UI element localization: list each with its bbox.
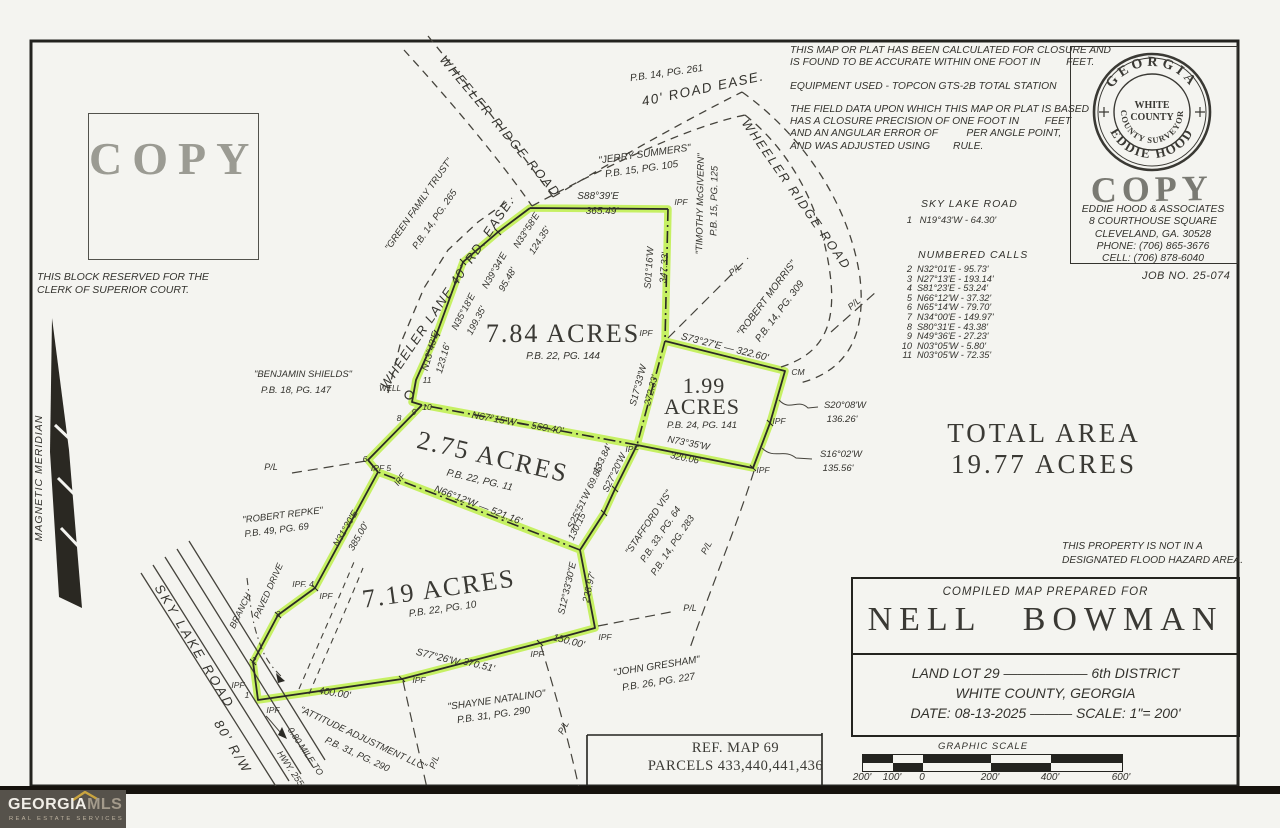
- surveyor-address-line: PHONE: (706) 865-3676: [1072, 241, 1234, 253]
- call-bearing: N65°14'W - 79.70': [917, 302, 991, 312]
- surveyor-address-line: 8 COURTHOUSE SQUARE: [1072, 216, 1234, 228]
- bearing-label: S01°16'W: [643, 245, 657, 289]
- surveyor-address-line: EDDIE HOOD & ASSOCIATES: [1072, 204, 1234, 216]
- vertex-number: 11: [423, 375, 432, 385]
- disclaimer-line: THIS MAP OR PLAT HAS BEEN CALCULATED FOR…: [790, 45, 1111, 57]
- distance-label: 347.33': [658, 251, 671, 284]
- marker-ipf: IPF: [231, 680, 245, 690]
- graphic-scale-title: GRAPHIC SCALE: [918, 741, 1048, 752]
- vertex-number: 9: [412, 407, 417, 417]
- neighbor-label: "ROBERT REPKE": [242, 505, 324, 526]
- north-arrow: [50, 318, 82, 608]
- flood-note-line: THIS PROPERTY IS NOT IN A: [1062, 540, 1243, 554]
- scanned-plat-sheet: { "page": { "copy_stamp": "COPY", "clerk…: [0, 0, 1280, 828]
- logo-brand-1: GEORGIA: [8, 796, 87, 813]
- pl-label: P/L: [699, 539, 714, 556]
- neighbor-label: "TIMOTHY McGIVERN": [694, 153, 707, 255]
- bearing-label: S12°33'30"E: [556, 561, 579, 616]
- surveyor-address: EDDIE HOOD & ASSOCIATES8 COURTHOUSE SQUA…: [1072, 204, 1234, 265]
- disclaimer-line: AND AN ANGULAR ERROR OF PER ANGLE POINT,: [790, 128, 1111, 140]
- scale-tick-label: 600': [1112, 772, 1131, 783]
- bearing-label: S88°39'E: [577, 191, 619, 202]
- vertex-number: 6: [363, 454, 368, 464]
- copy-stamp-box: COPY: [88, 113, 259, 260]
- call-bearing: N49°36'E - 27.23': [917, 331, 989, 341]
- parcel-area-label: ACRES: [664, 394, 740, 419]
- call-number: 11: [898, 351, 912, 361]
- surveyor-address-line: CLEVELAND, GA. 30528: [1072, 229, 1234, 241]
- scale-tick-label: 200': [981, 772, 1000, 783]
- call-bearing: N27°13'E - 193.14': [917, 274, 994, 284]
- closure-disclaimer: THIS MAP OR PLAT HAS BEEN CALCULATED FOR…: [790, 45, 1111, 153]
- total-area: TOTAL AREA 19.77 ACRES: [938, 418, 1150, 480]
- vertex-number: 10: [422, 402, 432, 412]
- marker-ipf: IPF: [319, 591, 333, 601]
- disclaimer-line: AND WAS ADJUSTED USING RULE.: [790, 141, 1111, 153]
- land-lot-line: LAND LOT 29 —————— 6th DISTRICT: [853, 665, 1238, 681]
- flood-note-line: DESIGNATED FLOOD HAZARD AREA.: [1062, 554, 1243, 568]
- date-scale-line: DATE: 08-13-2025 ——— SCALE: 1"= 200': [853, 705, 1238, 721]
- call-bearing: N19°43'W - 64.30': [920, 215, 997, 226]
- scale-tick-label: 200': [853, 772, 872, 783]
- vertex-number: 1: [245, 690, 250, 700]
- call-bearing: N03°05'W - 72.35': [917, 350, 991, 360]
- numbered-call-row: 1 N19°43'W - 64.30': [898, 215, 996, 226]
- total-area-line: TOTAL AREA: [938, 418, 1150, 449]
- road-label-sky-lake-road: SKY LAKE ROAD: [152, 582, 238, 712]
- total-area-line: 19.77 ACRES: [938, 449, 1150, 480]
- parcel-area-label: 7.84 ACRES: [486, 319, 640, 348]
- plat-ref-label: P.B. 22, PG. 144: [526, 351, 600, 362]
- bearing-label: N67°15'W — 569.40': [471, 410, 565, 437]
- call-bearing: N03°05'W - 5.80': [917, 341, 986, 351]
- pl-label: P/L: [556, 719, 571, 736]
- plat-ref-label: P.B. 14, PG. 261: [629, 63, 704, 84]
- scale-bar-segment: [893, 755, 923, 763]
- call-bearing: S81°23'E - 53.24': [917, 283, 988, 293]
- job-number: JOB NO. 25-074: [1142, 270, 1230, 282]
- disclaimer-line: IS FOUND TO BE ACCURATE WITHIN ONE FOOT …: [790, 57, 1111, 69]
- call-bearing: S80°31'E - 43.38': [917, 322, 988, 332]
- logo-tagline: REAL ESTATE SERVICES: [9, 816, 124, 822]
- distance-label: 320.06': [669, 450, 703, 467]
- copy-stamp-text: COPY: [89, 132, 258, 185]
- scale-bar-segment: [991, 763, 1051, 771]
- surveyor-address-line: CELL: (706) 878-6040: [1072, 253, 1234, 265]
- pl-label: P/L: [683, 603, 697, 613]
- scale-tick-label: 400': [1041, 772, 1060, 783]
- branch-arrowhead: [276, 673, 285, 683]
- marker-ipf: IPF: [625, 444, 639, 454]
- clerk-note-line: CLERK OF SUPERIOR COURT.: [37, 284, 209, 297]
- marker-ipf: IPF: [756, 465, 770, 475]
- scale-bar-segment: [923, 763, 991, 771]
- distance-label: 365.49': [586, 206, 620, 217]
- title-block-divider: [853, 653, 1238, 655]
- marker-ipf: IPF: [772, 416, 786, 426]
- scale-bar-segment: [923, 755, 991, 763]
- disclaimer-line: THE FIELD DATA UPON WHICH THIS MAP OR PL…: [790, 104, 1111, 116]
- plat-ref-label: P.B. 24, PG. 141: [667, 420, 737, 431]
- pl-label: P/L: [727, 262, 744, 278]
- vertex-number: 3: [276, 609, 281, 619]
- marker-ipf: IPF: [530, 649, 544, 659]
- ref-parcels-line: PARCELS 433,440,441,436: [643, 757, 828, 775]
- marker-cm: CM: [791, 367, 805, 377]
- scale-bar-segment: [1051, 763, 1122, 771]
- logo-brand-2: MLS: [87, 796, 122, 813]
- calls-road-title: SKY LAKE ROAD: [921, 198, 1018, 210]
- note-mile-to-hwy-2: HWY. 255: [275, 749, 306, 789]
- road-label-wheeler-ridge-road-west: WHEELER RIDGE ROAD: [437, 53, 564, 200]
- scale-tick-label: 100': [883, 772, 902, 783]
- county-line: WHITE COUNTY, GEORGIA: [853, 685, 1238, 701]
- bearing-label: S16°02'W: [820, 449, 863, 460]
- scale-bar-segment: [893, 763, 923, 771]
- clerk-note-line: THIS BLOCK RESERVED FOR THE: [37, 271, 209, 284]
- call-bearing: N34°00'E - 149.97': [917, 312, 994, 322]
- call-bearing: N32°01'E - 95.73': [917, 264, 989, 274]
- clerk-note: THIS BLOCK RESERVED FOR THE CLERK OF SUP…: [37, 271, 209, 297]
- marker-well: WELL: [379, 384, 401, 393]
- mile-marker-arrowhead: [278, 727, 287, 739]
- neighbor-label: "BENJAMIN SHIELDS": [254, 369, 353, 380]
- vertex-number: 2: [251, 655, 257, 665]
- bottom-band: [0, 786, 1280, 794]
- georgia-mls-logo: GEORGIAMLS REAL ESTATE SERVICES: [0, 790, 126, 828]
- pl-label: P/L: [846, 296, 863, 312]
- call-number: 1: [898, 215, 912, 226]
- reference-block: REF. MAP 69 PARCELS 433,440,441,436: [643, 739, 828, 775]
- marker-ipf: IPF. 4: [292, 579, 314, 589]
- marker-ipf: IPF: [412, 675, 426, 685]
- graphic-scale-bar: [862, 754, 1123, 772]
- disclaimer-line: HAS A CLOSURE PRECISION OF ONE FOOT IN F…: [790, 116, 1111, 128]
- call-bearing: N66°12'W - 37.32': [917, 293, 991, 303]
- disclaimer-line: EQUIPMENT USED - TOPCON GTS-2B TOTAL STA…: [790, 81, 1111, 93]
- owner-name: NELL BOWMAN: [853, 601, 1238, 639]
- distance-label: 136.26': [827, 414, 859, 425]
- plat-ref-label: P.B. 15, PG. 125: [708, 165, 720, 236]
- distance-label: 135.56': [823, 463, 855, 474]
- bearing-label: S20°08'W: [824, 400, 867, 411]
- scale-bar-segment: [863, 755, 893, 763]
- road-label-80-rw: 80' R/W: [211, 717, 255, 776]
- scale-bar-segment: [991, 755, 1051, 763]
- parcel-boundary-dashdot: [378, 209, 668, 550]
- marker-ipf: IPF: [639, 328, 653, 338]
- ref-map-line: REF. MAP 69: [643, 739, 828, 757]
- numbered-call-row: 11N03°05'W - 72.35': [898, 351, 994, 361]
- scale-bar-segment: [863, 763, 893, 771]
- marker-ipf: IPF: [674, 197, 688, 207]
- marker-ipf: IPF: [266, 705, 280, 715]
- title-block: COMPILED MAP PREPARED FOR NELL BOWMAN LA…: [851, 577, 1240, 737]
- numbered-calls-table: 2N32°01'E - 95.73'3N27°13'E - 193.14'4S8…: [898, 265, 994, 361]
- graphic-scale-ticks: 200'100'0200'400'600': [862, 772, 1132, 785]
- marker-ipf: IPF 5: [371, 463, 391, 473]
- label-magnetic-meridian: MAGNETIC MERIDIAN: [33, 415, 45, 542]
- flood-note: THIS PROPERTY IS NOT IN A DESIGNATED FLO…: [1062, 540, 1243, 567]
- scale-tick-label: 0: [919, 772, 925, 783]
- pl-label: P/L: [264, 462, 278, 472]
- plat-ref-label: P.B. 18, PG. 147: [261, 385, 332, 396]
- vertex-number: 8: [397, 413, 402, 423]
- marker-ipf: IPF: [598, 632, 612, 642]
- prepared-for-label: COMPILED MAP PREPARED FOR: [853, 586, 1238, 598]
- pl-label: P/L: [427, 754, 441, 770]
- bearing-label: S77°26'W: [415, 647, 462, 669]
- calls-list-title: NUMBERED CALLS: [918, 249, 1028, 261]
- scale-bar-segment: [1051, 755, 1122, 763]
